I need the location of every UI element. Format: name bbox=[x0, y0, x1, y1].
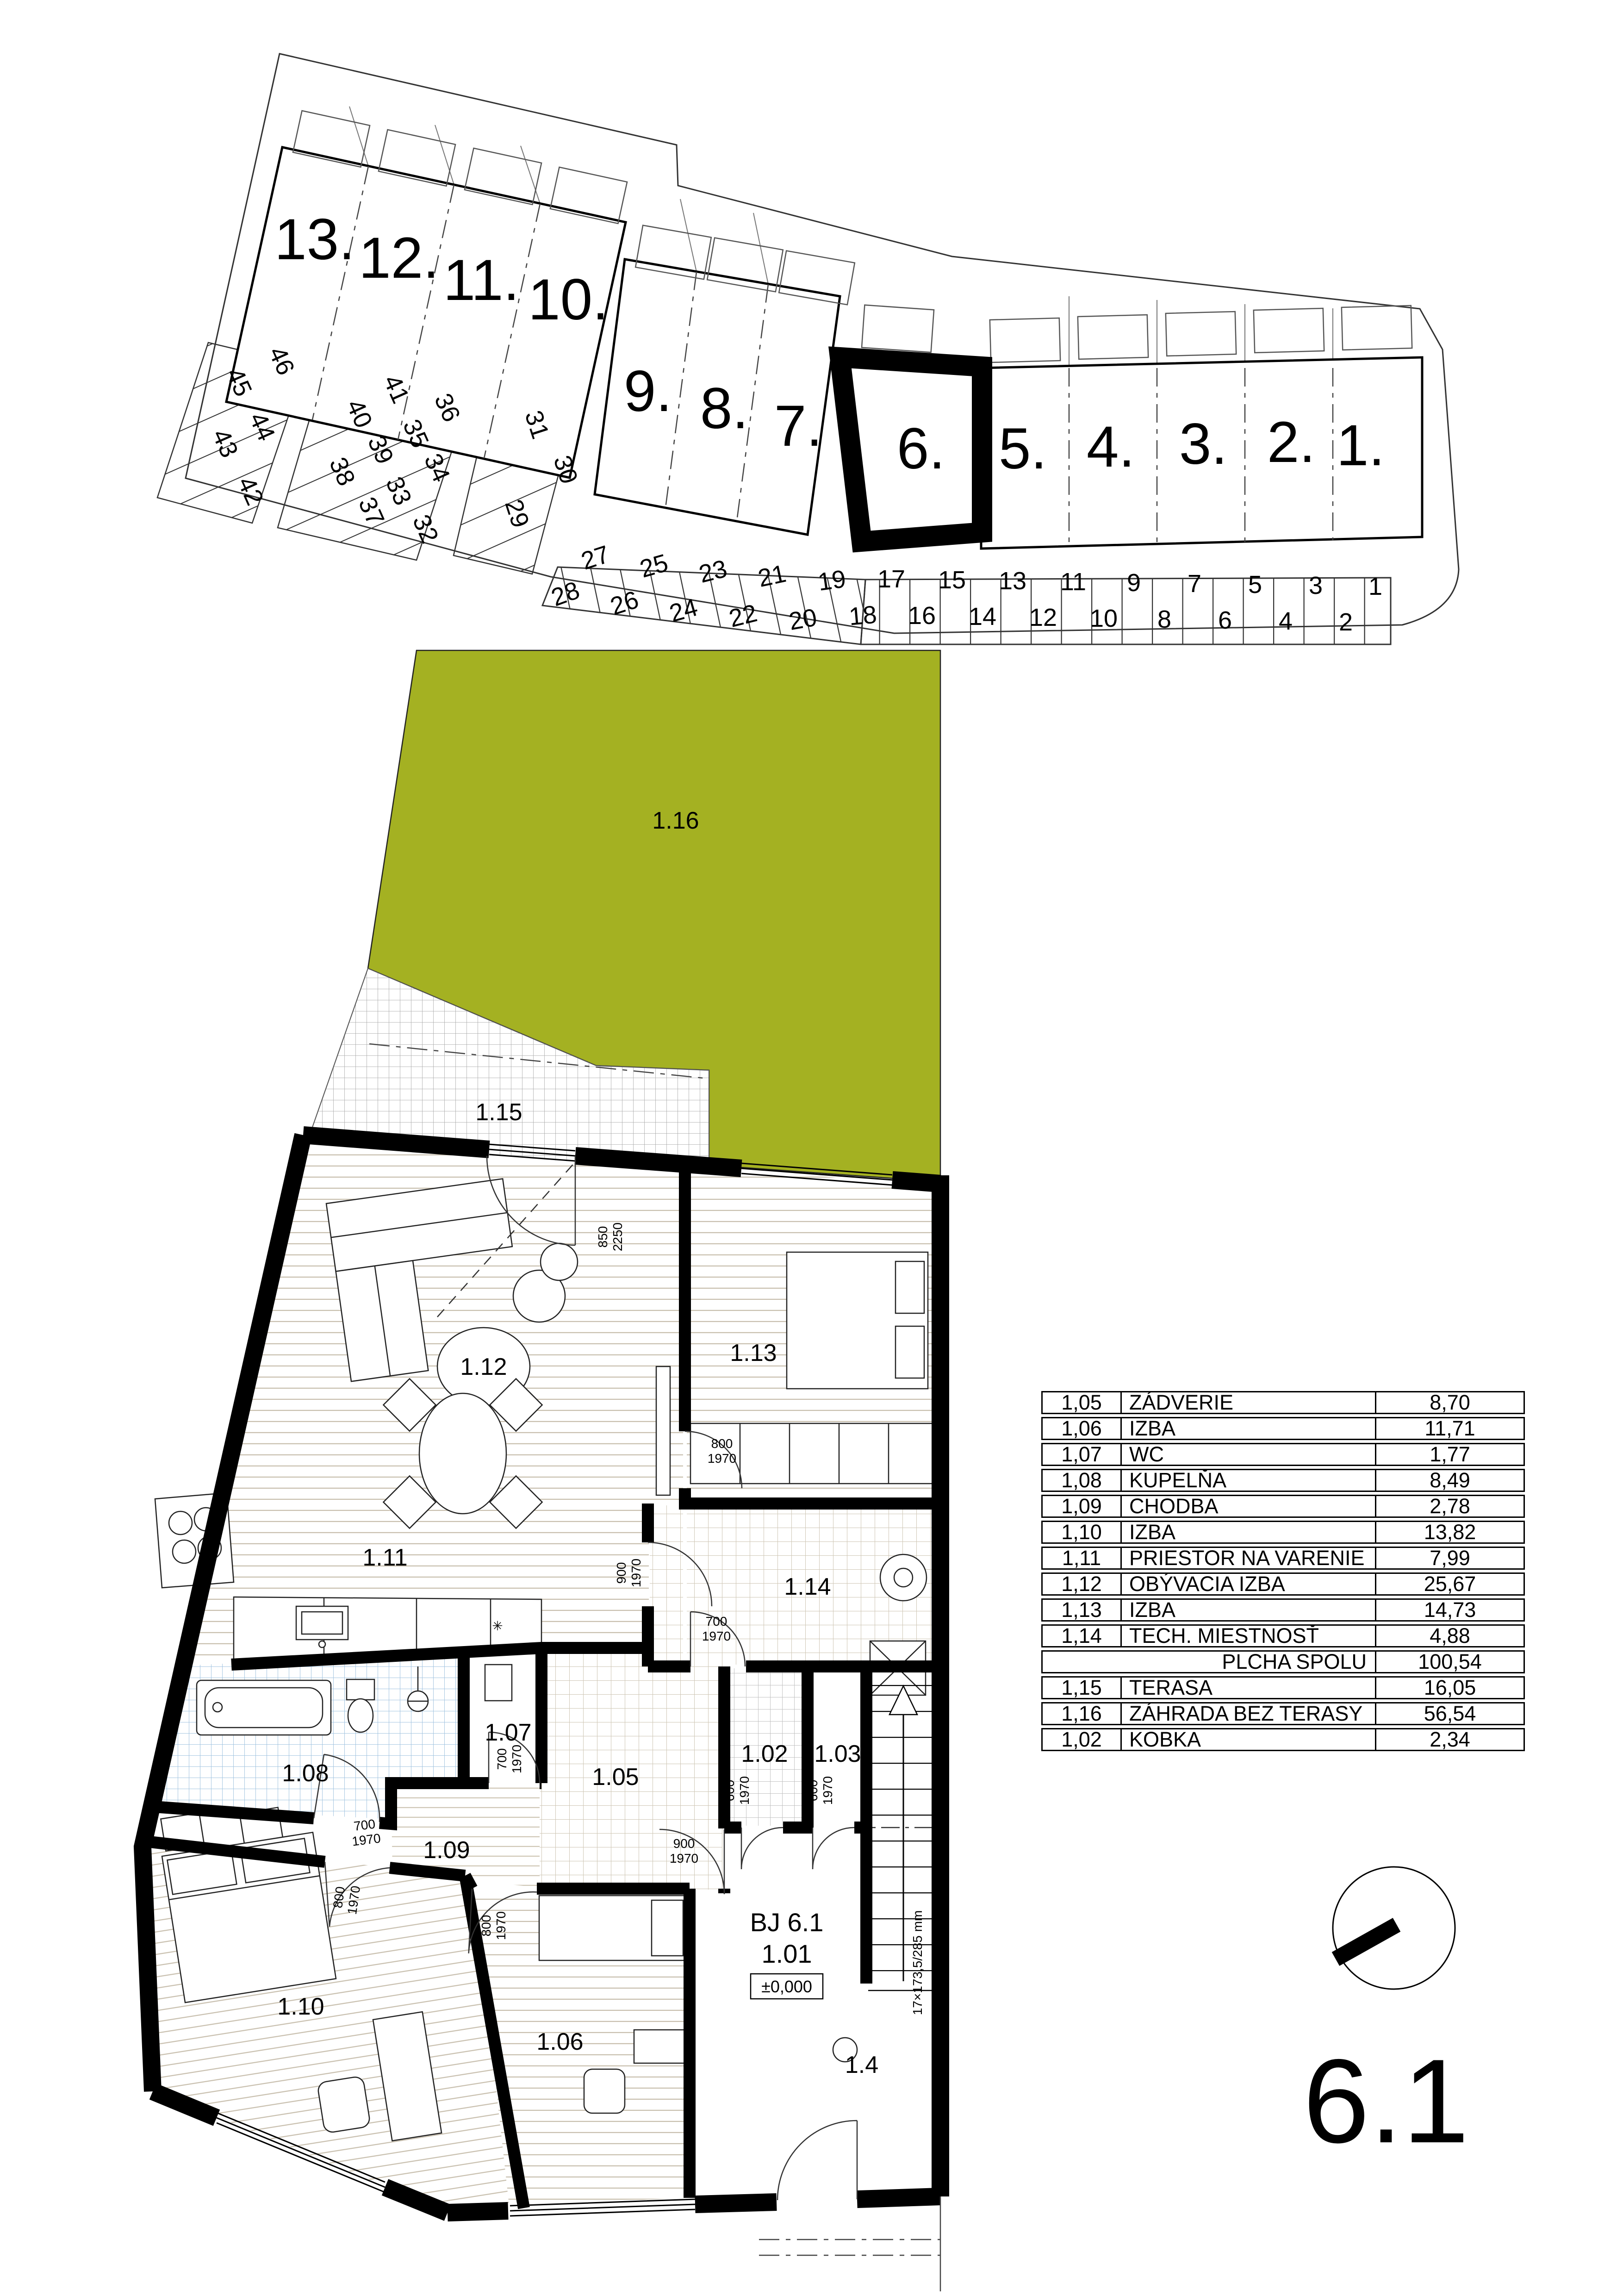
row-name: IZBA bbox=[1122, 1522, 1375, 1542]
row-total-label: PLCHA SPOLU bbox=[1043, 1652, 1375, 1672]
dim-800b: 800 bbox=[330, 1885, 348, 1909]
row-id: 1,14 bbox=[1043, 1626, 1122, 1646]
row-name: TECH. MIESTNOSŤ bbox=[1122, 1626, 1375, 1646]
dim-850: 850 bbox=[596, 1226, 610, 1248]
row-id: 1,11 bbox=[1043, 1548, 1122, 1568]
row-id: 1,05 bbox=[1043, 1392, 1122, 1413]
row-name: KUPELŇA bbox=[1122, 1470, 1375, 1491]
architectural-drawing: 13. 12. 11. 10. 9. 8. 7. 6. 5. 4. 3. 2. … bbox=[0, 0, 1623, 2296]
row-name: TERASA bbox=[1122, 1678, 1375, 1698]
row-id: 1,15 bbox=[1043, 1678, 1122, 1698]
unit-number: 6.1 bbox=[1303, 2034, 1469, 2168]
room-label-stair: 1.4 bbox=[845, 2052, 878, 2078]
room-label-garden: 1.16 bbox=[652, 807, 699, 834]
row-area: 14,73 bbox=[1375, 1600, 1524, 1620]
level-label: ±0,000 bbox=[761, 1977, 812, 1996]
dim-2250: 2250 bbox=[610, 1223, 625, 1251]
dim-1970i: 1970 bbox=[737, 1776, 752, 1805]
house-label-13: 13. bbox=[274, 207, 355, 272]
row-id: 1,07 bbox=[1043, 1444, 1122, 1465]
house-label-4: 4. bbox=[1087, 415, 1135, 479]
table-row: 1,10 IZBA 13,82 bbox=[1041, 1521, 1525, 1544]
table-row: 1,08 KUPELŇA 8,49 bbox=[1041, 1469, 1525, 1492]
room-label-bedroom06: 1.06 bbox=[536, 2028, 583, 2055]
house-label-3: 3. bbox=[1179, 412, 1227, 476]
room-label-kobka: 1.02 bbox=[741, 1741, 788, 1767]
stall-7: 7 bbox=[1188, 570, 1201, 598]
table-row: 1,13 IZBA 14,73 bbox=[1041, 1598, 1525, 1622]
dim-1970j: 1970 bbox=[821, 1776, 835, 1805]
house-label-5: 5. bbox=[999, 417, 1047, 481]
row-area: 2,78 bbox=[1375, 1496, 1524, 1516]
dim-900a: 900 bbox=[614, 1562, 628, 1584]
row-id: 1,10 bbox=[1043, 1522, 1122, 1542]
table-row: 1,15 TERASA 16,05 bbox=[1041, 1676, 1525, 1699]
stall-10: 10 bbox=[1090, 605, 1118, 632]
row-name: CHODBA bbox=[1122, 1496, 1375, 1516]
stall-16: 16 bbox=[908, 602, 936, 630]
row-area: 13,82 bbox=[1375, 1522, 1524, 1542]
room-area-table: 1,05 ZÁDVERIE 8,70 1,06 IZBA 11,71 1,07 … bbox=[1041, 1391, 1525, 1754]
house-label-1: 1. bbox=[1337, 413, 1385, 478]
row-id: 1,16 bbox=[1043, 1703, 1122, 1724]
table-row: 1,09 CHODBA 2,78 bbox=[1041, 1495, 1525, 1518]
stall-13: 13 bbox=[999, 567, 1026, 595]
room-label-entry: 1.01 bbox=[762, 1939, 812, 1968]
row-id: 1,13 bbox=[1043, 1600, 1122, 1620]
table-row: 1,14 TECH. MIESTNOSŤ 4,88 bbox=[1041, 1624, 1525, 1647]
row-area: 1,77 bbox=[1375, 1444, 1524, 1465]
room-label-tech: 1.14 bbox=[784, 1573, 831, 1600]
dim-1970e: 1970 bbox=[351, 1831, 382, 1848]
row-area: 4,88 bbox=[1375, 1626, 1524, 1646]
section-lines bbox=[759, 2196, 940, 2291]
stall-8: 8 bbox=[1157, 605, 1171, 633]
row-area: 8,49 bbox=[1375, 1470, 1524, 1491]
room-label-corridor: 1.09 bbox=[423, 1837, 470, 1864]
row-id: 1,12 bbox=[1043, 1574, 1122, 1594]
table-row: 1,02 KOBKA 2,34 bbox=[1041, 1728, 1525, 1751]
dim-1970h: 1970 bbox=[670, 1851, 698, 1865]
row-id: 1,09 bbox=[1043, 1496, 1122, 1516]
dim-700b: 700 bbox=[495, 1748, 509, 1770]
stall-1: 1 bbox=[1368, 573, 1382, 600]
dim-1970a: 1970 bbox=[708, 1451, 736, 1466]
dim-600a: 600 bbox=[722, 1780, 737, 1802]
row-name: IZBA bbox=[1122, 1418, 1375, 1439]
house-label-7: 7. bbox=[774, 394, 822, 458]
dim-800a: 800 bbox=[711, 1436, 733, 1451]
stall-4: 4 bbox=[1279, 607, 1293, 635]
row-area: 25,67 bbox=[1375, 1574, 1524, 1594]
room-label-hall: 1.05 bbox=[592, 1764, 639, 1791]
stall-2: 2 bbox=[1339, 608, 1353, 636]
house-label-6: 6. bbox=[897, 417, 945, 481]
row-area: 56,54 bbox=[1375, 1703, 1524, 1724]
room-label-storage: 1.03 bbox=[814, 1741, 861, 1767]
row-name: OBÝVACIA IZBA bbox=[1122, 1574, 1375, 1594]
table-row: 1,06 IZBA 11,71 bbox=[1041, 1417, 1525, 1440]
dim-700c: 700 bbox=[353, 1816, 376, 1833]
site-plan: 13. 12. 11. 10. 9. 8. 7. 6. 5. 4. 3. 2. … bbox=[157, 54, 1459, 644]
row-area: 16,05 bbox=[1375, 1678, 1524, 1698]
row-area: 2,34 bbox=[1375, 1729, 1524, 1750]
stall-15: 15 bbox=[938, 566, 966, 594]
stall-9: 9 bbox=[1127, 569, 1141, 597]
house-label-10: 10. bbox=[528, 268, 609, 332]
room-label-bedroom10: 1.10 bbox=[277, 1993, 324, 2020]
stall-20: 20 bbox=[787, 604, 819, 636]
dishwasher-symbol: ✳ bbox=[492, 1619, 503, 1633]
dim-900b: 900 bbox=[673, 1836, 695, 1851]
stair-note: 17×173,5/285 mm bbox=[910, 1910, 925, 2015]
room-label-wc: 1.07 bbox=[485, 1719, 531, 1746]
unit-label: BJ 6.1 bbox=[750, 1908, 824, 1937]
row-area: 8,70 bbox=[1375, 1392, 1524, 1413]
stall-6: 6 bbox=[1218, 606, 1232, 634]
table-row-total: PLCHA SPOLU 100,54 bbox=[1041, 1650, 1525, 1673]
dim-1970b: 1970 bbox=[629, 1559, 643, 1587]
dim-1970g: 1970 bbox=[494, 1911, 508, 1940]
room-label-kitchen: 1.11 bbox=[362, 1544, 407, 1571]
room-label-bedroom13: 1.13 bbox=[730, 1340, 777, 1366]
dim-1970d: 1970 bbox=[510, 1745, 524, 1773]
house-label-8: 8. bbox=[700, 376, 748, 441]
row-name: KOBKA bbox=[1122, 1729, 1375, 1750]
stall-14: 14 bbox=[969, 603, 996, 630]
stall-11: 11 bbox=[1060, 568, 1086, 596]
row-id: 1,02 bbox=[1043, 1729, 1122, 1750]
house-label-11: 11. bbox=[443, 248, 520, 312]
row-area: 11,71 bbox=[1375, 1418, 1524, 1439]
house-label-12: 12. bbox=[359, 226, 439, 290]
row-name: IZBA bbox=[1122, 1600, 1375, 1620]
table-row: 1,07 WC 1,77 bbox=[1041, 1443, 1525, 1466]
dim-700a: 700 bbox=[706, 1614, 728, 1628]
floor-plan: 1.16 1.15 1.12 1.13 1.11 1.14 1.08 1.07 … bbox=[143, 650, 940, 2291]
row-name: ZÁDVERIE bbox=[1122, 1392, 1375, 1413]
stall-3: 3 bbox=[1309, 572, 1323, 599]
compass-needle bbox=[1336, 1925, 1397, 1959]
dim-1970c: 1970 bbox=[702, 1629, 731, 1643]
row-name: WC bbox=[1122, 1444, 1375, 1465]
stall-19: 19 bbox=[816, 565, 848, 596]
room-label-living: 1.12 bbox=[460, 1354, 507, 1380]
stall-17: 17 bbox=[877, 565, 905, 593]
stall-18: 18 bbox=[848, 601, 878, 631]
row-total-area: 100,54 bbox=[1375, 1652, 1524, 1672]
stall-12: 12 bbox=[1029, 604, 1057, 631]
staircase bbox=[868, 1670, 939, 1990]
table-row: 1,16 ZÁHRADA BEZ TERASY 56,54 bbox=[1041, 1702, 1525, 1725]
row-id: 1,06 bbox=[1043, 1418, 1122, 1439]
floorplan-sheet: 13. 12. 11. 10. 9. 8. 7. 6. 5. 4. 3. 2. … bbox=[0, 0, 1623, 2296]
north-compass bbox=[1333, 1867, 1455, 1989]
dim-800c: 800 bbox=[479, 1915, 493, 1937]
stall-21: 21 bbox=[756, 560, 789, 593]
row-id: 1,08 bbox=[1043, 1470, 1122, 1491]
table-row: 1,05 ZÁDVERIE 8,70 bbox=[1041, 1391, 1525, 1414]
house-label-2: 2. bbox=[1267, 410, 1315, 474]
row-area: 7,99 bbox=[1375, 1548, 1524, 1568]
table-row: 1,11 PRIESTOR NA VARENIE 7,99 bbox=[1041, 1547, 1525, 1570]
room-label-bath: 1.08 bbox=[282, 1760, 329, 1787]
row-name: PRIESTOR NA VARENIE bbox=[1122, 1548, 1375, 1568]
table-row: 1,12 OBÝVACIA IZBA 25,67 bbox=[1041, 1572, 1525, 1596]
room-label-terrace: 1.15 bbox=[475, 1099, 522, 1126]
row-name: ZÁHRADA BEZ TERASY bbox=[1122, 1703, 1375, 1724]
house-label-9: 9. bbox=[624, 359, 672, 424]
dim-600b: 600 bbox=[806, 1780, 820, 1802]
stall-5: 5 bbox=[1248, 571, 1262, 599]
